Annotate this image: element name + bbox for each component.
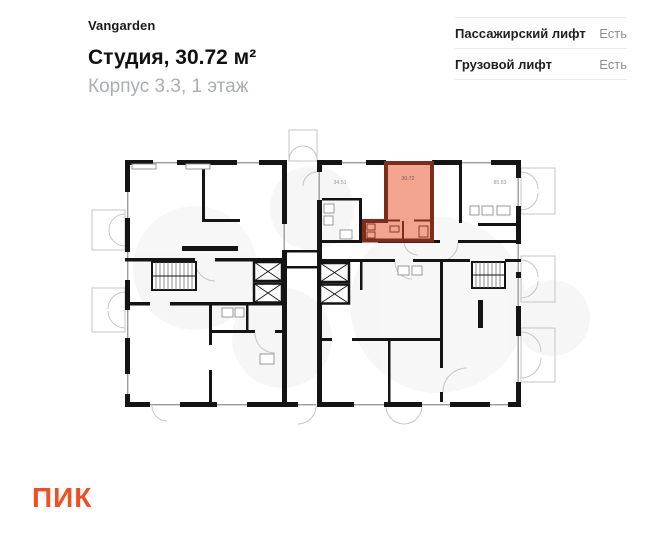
unit-area-label-left: 34.51 xyxy=(334,180,347,186)
unit-area-label-highlighted: 30.72 xyxy=(402,176,415,182)
floor-plan: 34.51 30.72 85.83 xyxy=(0,0,648,540)
unit-area-label-right: 85.83 xyxy=(494,180,507,186)
floor-plan-image[interactable]: 34.51 30.72 85.83 xyxy=(0,0,648,540)
pik-logo[interactable]: ПИК xyxy=(32,482,92,514)
highlighted-unit xyxy=(364,163,432,241)
listing-floorplan-page: { "header": { "brand": "Vangarden", "tit… xyxy=(0,0,648,540)
highlighted-unit-outline xyxy=(364,163,432,241)
